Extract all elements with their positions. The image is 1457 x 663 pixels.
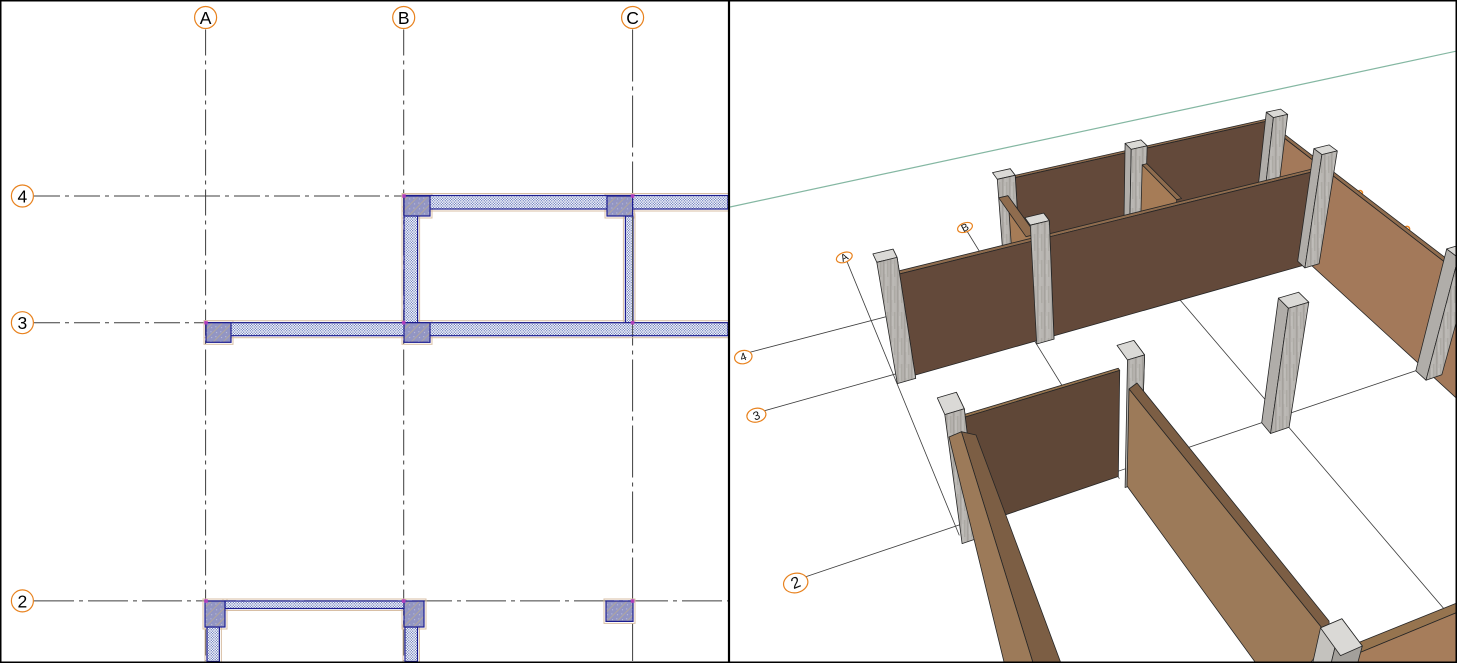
svg-text:B: B: [398, 8, 410, 28]
svg-text:C: C: [626, 8, 639, 28]
svg-text:3: 3: [18, 313, 28, 333]
svg-text:A: A: [200, 8, 212, 28]
svg-text:4: 4: [18, 187, 28, 207]
svg-text:2: 2: [18, 591, 28, 611]
